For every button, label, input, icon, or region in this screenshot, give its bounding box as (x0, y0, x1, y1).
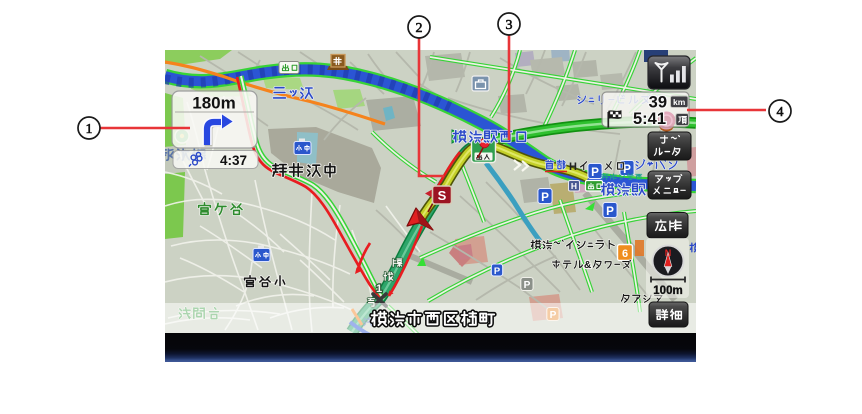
svg-text:S: S (438, 188, 447, 203)
svg-text:P: P (606, 205, 614, 218)
svg-text:2: 2 (416, 21, 423, 36)
svg-text:3: 3 (506, 18, 513, 33)
svg-text:P: P (591, 166, 599, 179)
svg-text:180m: 180m (192, 94, 235, 113)
svg-text:&: & (584, 260, 591, 271)
svg-text:4: 4 (777, 105, 784, 120)
svg-text:P: P (524, 280, 531, 291)
svg-text:4:37: 4:37 (220, 153, 247, 168)
svg-text:100m: 100m (653, 285, 682, 297)
svg-text:P: P (541, 191, 549, 204)
svg-text:H: H (571, 181, 577, 191)
svg-text:km: km (673, 97, 686, 107)
svg-text:6: 6 (622, 248, 628, 260)
svg-text:39: 39 (649, 94, 667, 112)
svg-text:P: P (494, 265, 500, 276)
svg-text:H: H (569, 161, 577, 173)
svg-text:1: 1 (376, 283, 382, 295)
svg-text:1: 1 (86, 122, 93, 137)
svg-text:5:41: 5:41 (633, 110, 666, 128)
